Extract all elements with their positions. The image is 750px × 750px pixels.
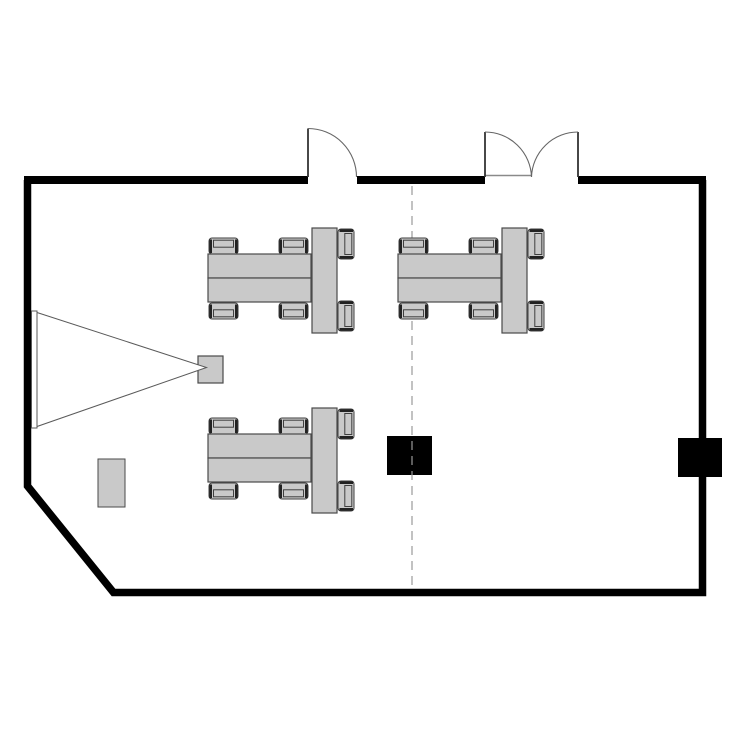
table <box>208 254 311 278</box>
chair <box>399 238 428 254</box>
table-group-top-right <box>398 228 544 333</box>
chair <box>338 409 354 439</box>
chair <box>279 238 308 254</box>
chair-backrest <box>404 310 424 317</box>
chair <box>279 303 308 319</box>
chair-backrest <box>474 240 494 247</box>
table-group-top-left <box>208 228 354 333</box>
end-table <box>312 228 337 333</box>
chair <box>209 418 238 434</box>
chair-backrest <box>214 420 234 427</box>
projection-screen <box>32 311 38 428</box>
end-table <box>312 408 337 513</box>
table <box>208 434 311 458</box>
chair <box>399 303 428 319</box>
chair-backrest <box>214 240 234 247</box>
chair-backrest <box>214 490 234 497</box>
side-table <box>98 459 125 507</box>
chair <box>469 238 498 254</box>
chair <box>469 303 498 319</box>
floor-plan-svg <box>0 0 750 750</box>
chair <box>528 229 544 259</box>
chair-backrest <box>284 310 304 317</box>
chair <box>209 303 238 319</box>
table <box>398 254 501 278</box>
chair-backrest <box>345 234 352 255</box>
table-group-bottom-left <box>208 408 354 513</box>
table <box>208 278 311 302</box>
table <box>208 458 311 482</box>
table <box>398 278 501 302</box>
chair <box>338 301 354 331</box>
chair <box>209 238 238 254</box>
chair-backrest <box>284 240 304 247</box>
chair-backrest <box>345 414 352 435</box>
chair <box>338 229 354 259</box>
floor-plan-canvas <box>0 0 750 750</box>
chair-backrest <box>284 490 304 497</box>
chair-backrest <box>345 486 352 507</box>
chair-backrest <box>214 310 234 317</box>
chair <box>279 483 308 499</box>
chair-backrest <box>474 310 494 317</box>
chair <box>338 481 354 511</box>
chair-backrest <box>284 420 304 427</box>
chair-backrest <box>404 240 424 247</box>
chair-backrest <box>345 306 352 327</box>
floor-box-center <box>387 436 432 475</box>
chair-backrest <box>535 234 542 255</box>
end-table <box>502 228 527 333</box>
chair <box>279 418 308 434</box>
chair <box>528 301 544 331</box>
chair-backrest <box>535 306 542 327</box>
chair <box>209 483 238 499</box>
